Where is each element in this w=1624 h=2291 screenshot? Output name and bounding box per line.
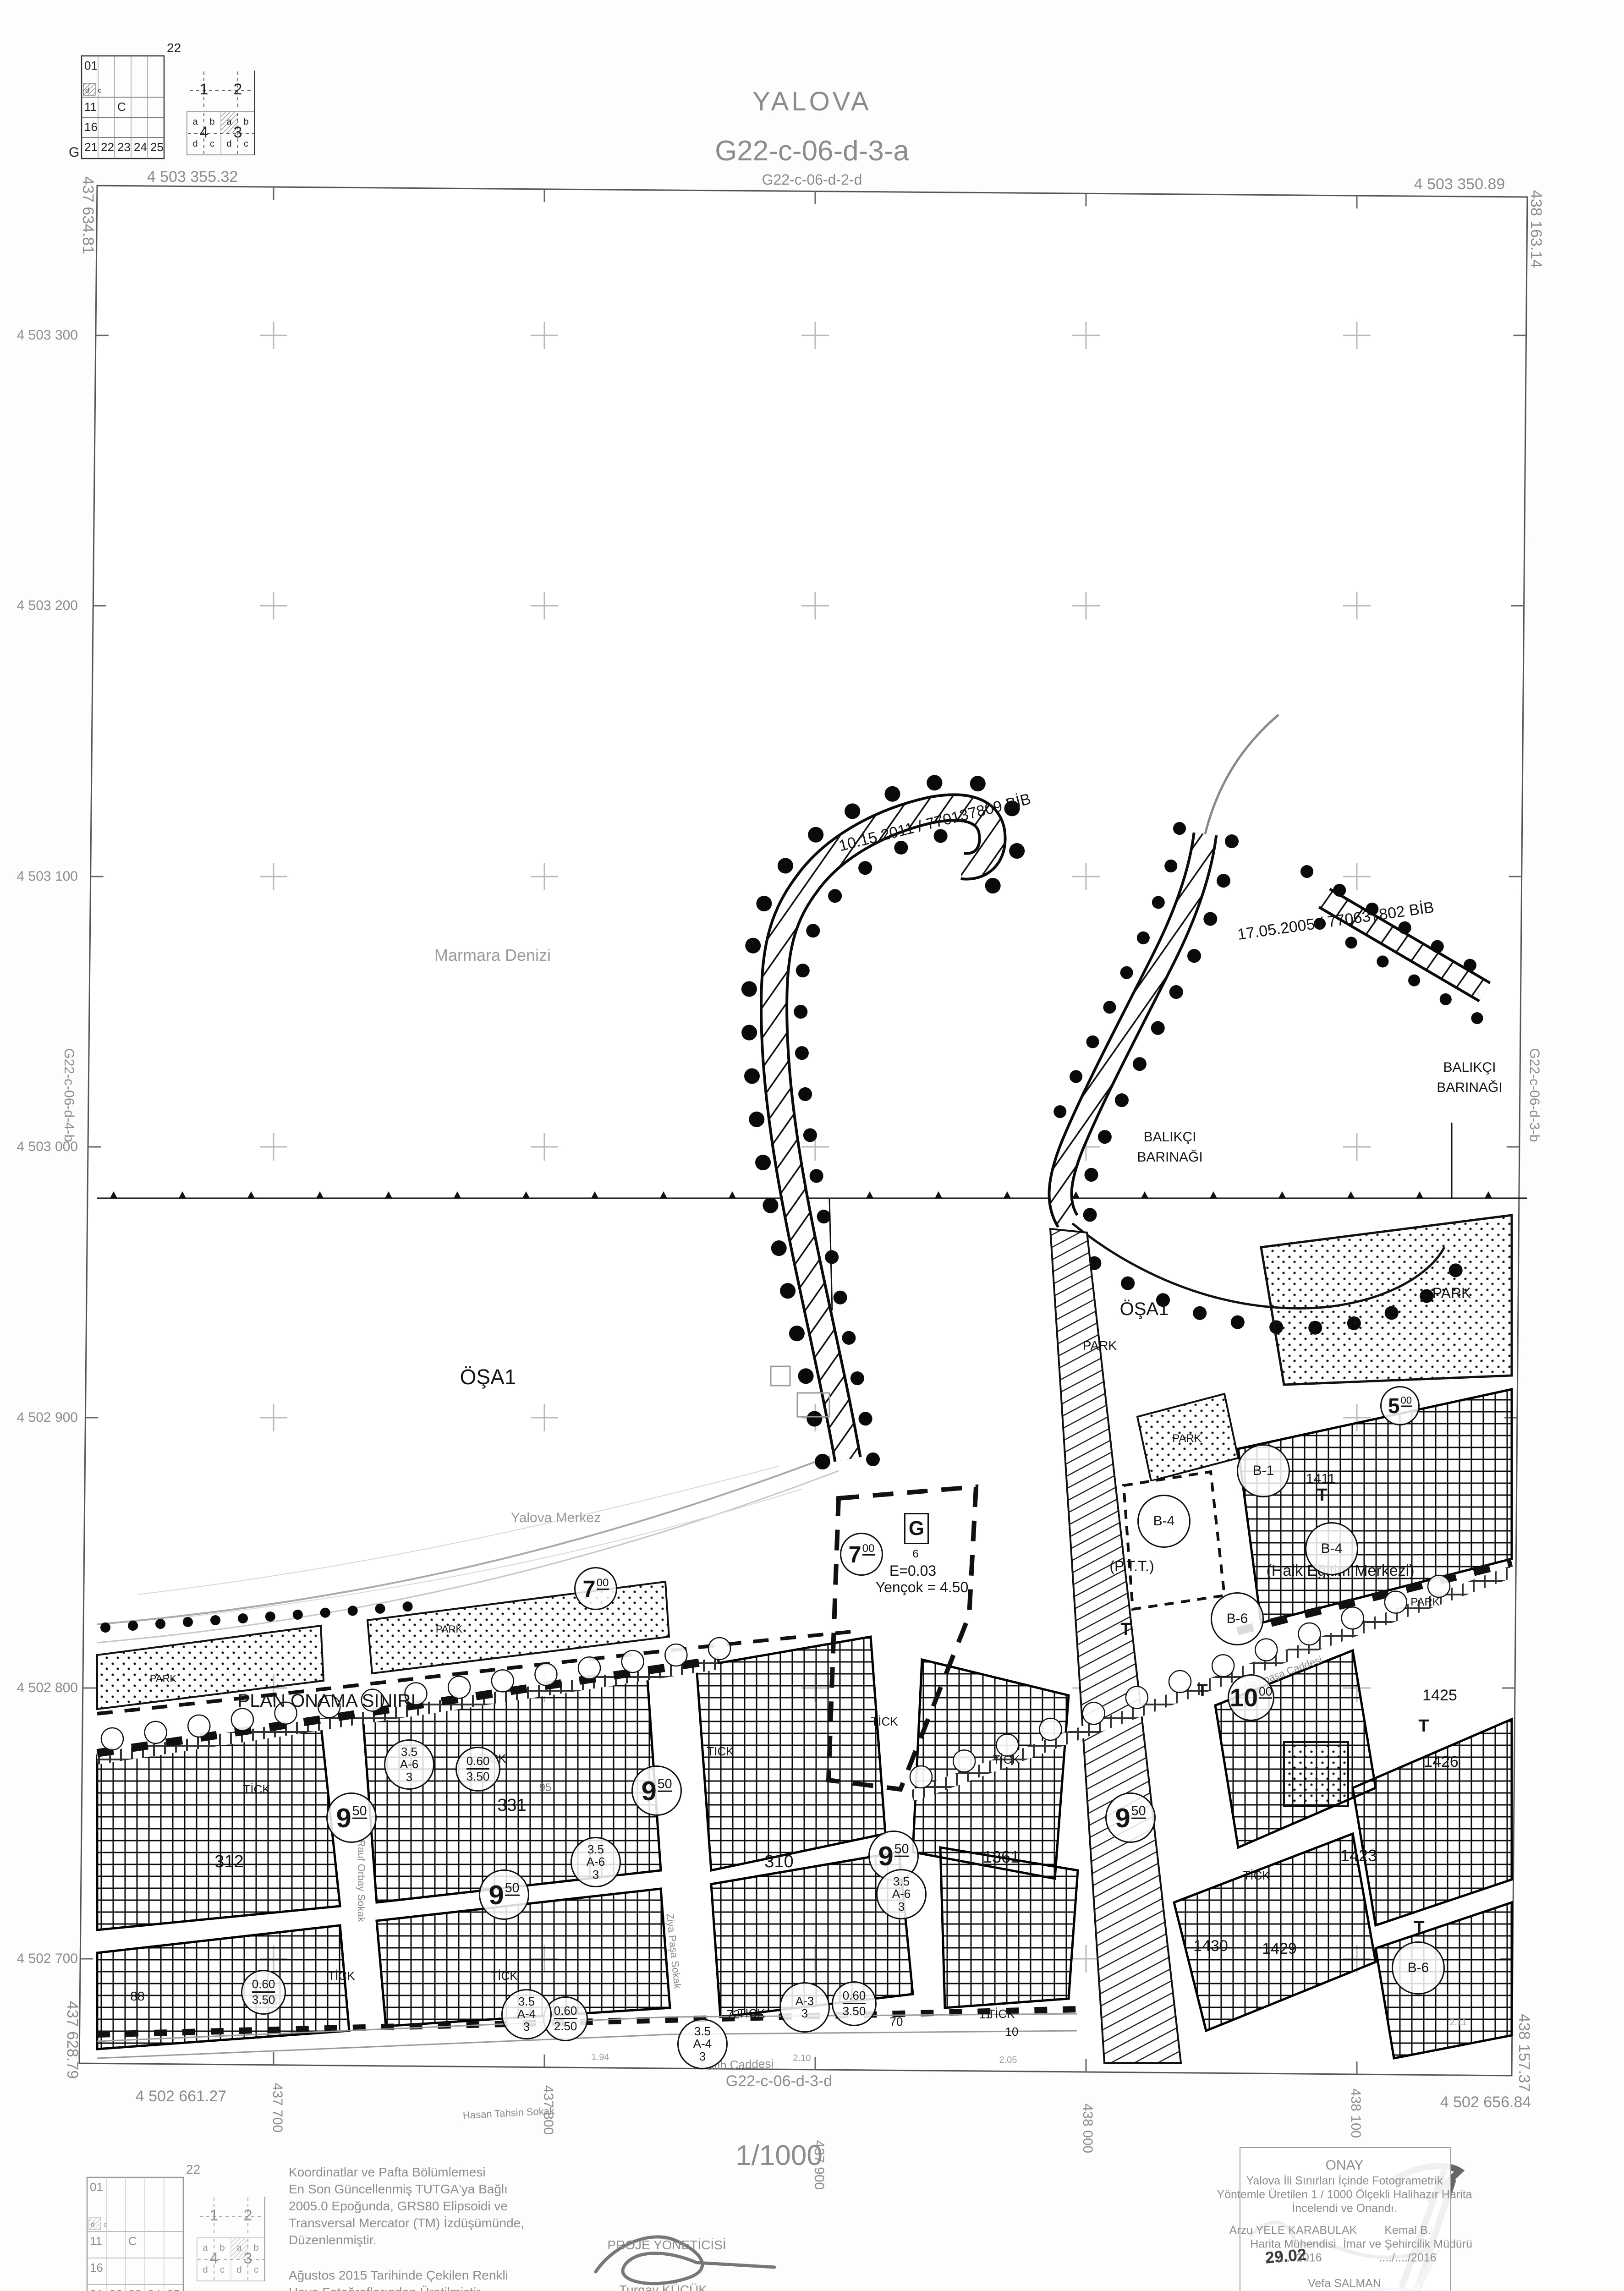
tree-circle <box>188 1715 210 1737</box>
tree-circle <box>953 1750 975 1772</box>
tree-circle <box>996 1734 1018 1756</box>
tree-circle <box>362 1689 384 1711</box>
ptt-block <box>1124 1472 1224 1609</box>
tree-circle <box>1428 1575 1450 1597</box>
tree-circle <box>1385 1591 1407 1613</box>
tree-circle <box>1342 1607 1364 1629</box>
tree-circle <box>318 1696 340 1718</box>
approver-left-signature <box>1251 2222 1425 2257</box>
tree-circle <box>492 1670 514 1692</box>
tree-circle <box>665 1644 687 1666</box>
map-sheet: YALOVA G22-c-06-d-3-a G22-c-06-d-2-d 4 5… <box>0 0 1624 2291</box>
tree-circle <box>1126 1687 1148 1709</box>
tree-circle <box>1212 1655 1234 1677</box>
map-canvas <box>0 0 1624 2291</box>
tree-circle <box>405 1683 427 1705</box>
tree-circle <box>1255 1639 1277 1661</box>
tree-circle <box>910 1766 932 1788</box>
project-signature <box>596 2237 774 2284</box>
tree-circle <box>145 1721 167 1743</box>
tree-circle <box>578 1657 600 1679</box>
tree-circle <box>275 1702 297 1724</box>
tree-circle <box>101 1728 123 1750</box>
tree-circle <box>535 1663 557 1685</box>
tree-circle <box>622 1650 644 1672</box>
tree-circle <box>1299 1623 1321 1645</box>
tree-circle <box>1040 1718 1062 1740</box>
tree-circle <box>708 1638 730 1660</box>
tree-circle <box>1169 1671 1191 1693</box>
tree-circle <box>231 1709 253 1731</box>
tree-circle <box>448 1676 470 1698</box>
tree-circle <box>1083 1702 1105 1724</box>
